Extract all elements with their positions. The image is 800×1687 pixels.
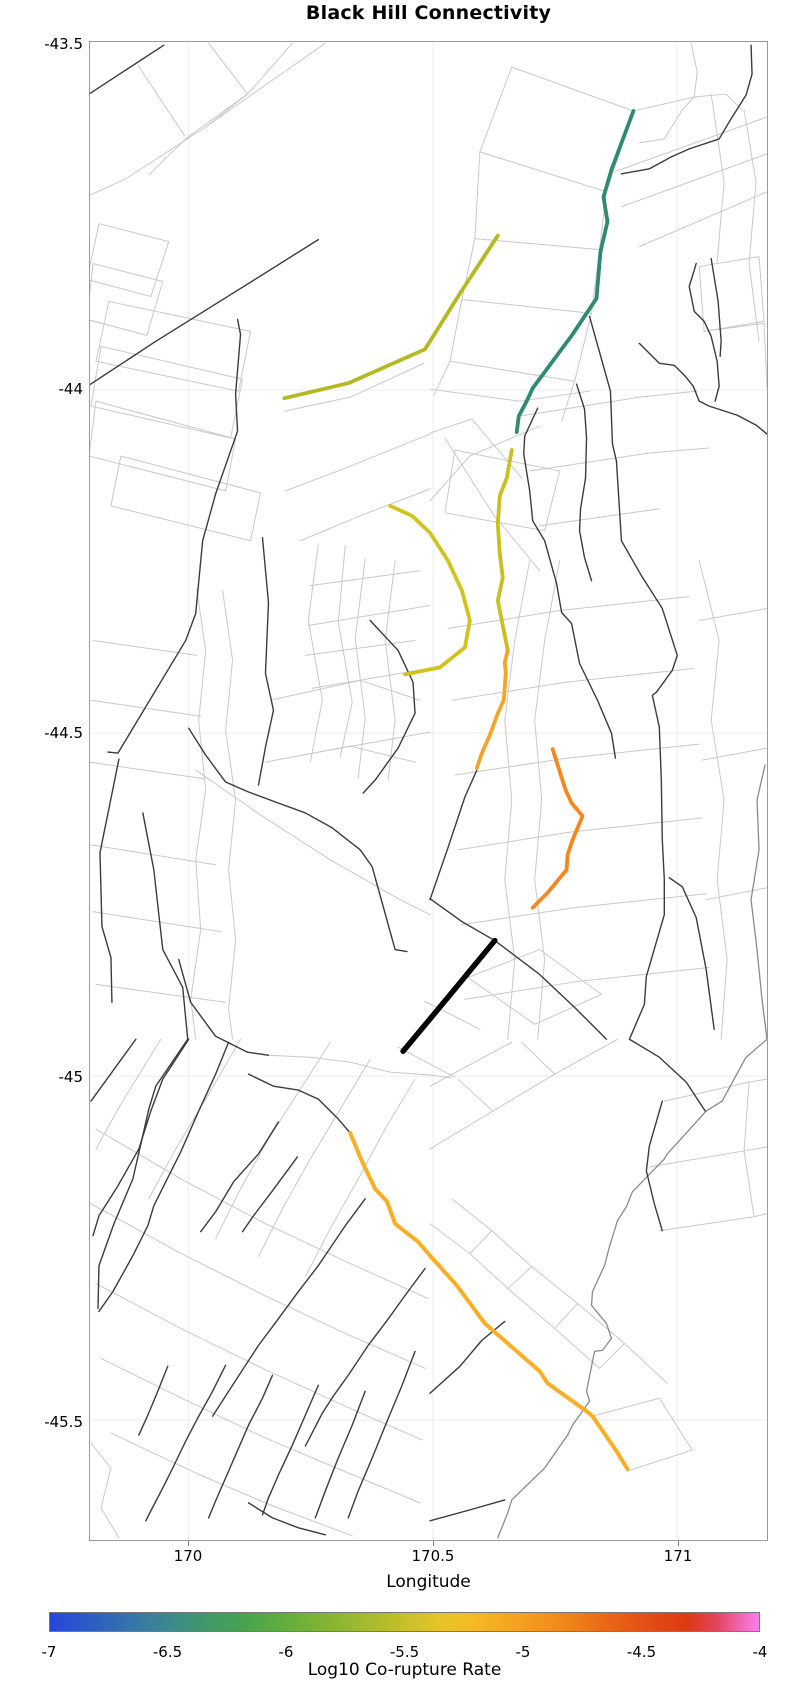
fault-traces-dark	[209, 1375, 273, 1518]
fault-traces-light	[468, 950, 602, 1025]
fault-traces-light	[699, 257, 764, 332]
rupture-yellow-hook	[390, 506, 470, 675]
fault-traces-light	[434, 67, 512, 395]
fault-traces-light	[480, 152, 607, 192]
fault-traces-light	[93, 912, 221, 932]
fault-traces-dark	[139, 1366, 168, 1435]
rupture-orange	[533, 749, 583, 908]
chart-title: Black Hill Connectivity	[89, 2, 768, 24]
fault-traces-light	[430, 1224, 599, 1369]
fault-traces-light	[96, 1129, 428, 1298]
colorbar-tick-label: -4	[730, 1643, 790, 1661]
fault-traces-light	[659, 1214, 767, 1231]
y-tick-label: -45.5	[0, 1413, 83, 1431]
rupture-amber-mid	[477, 650, 508, 768]
fault-traces-dark	[249, 1074, 351, 1133]
fault-traces-light	[206, 94, 248, 127]
fault-traces-light	[216, 1042, 331, 1238]
fault-traces-dark	[93, 1039, 189, 1235]
colorbar	[49, 1612, 760, 1632]
fault-traces-light	[398, 1047, 455, 1077]
fault-traces-light	[599, 1343, 624, 1368]
fault-traces-light	[555, 1303, 578, 1328]
fault-traces-light	[305, 640, 415, 655]
fault-traces-light	[270, 680, 420, 700]
fault-traces-light	[111, 1433, 352, 1536]
fault-traces-light	[91, 700, 201, 716]
fault-traces-light	[91, 43, 325, 195]
colorbar-label: Log10 Co-rupture Rate	[49, 1660, 760, 1680]
fault-traces-light	[285, 434, 430, 491]
fault-traces-dark	[348, 1351, 415, 1518]
colorbar-tick-label: -4.5	[612, 1643, 672, 1661]
fault-traces-light	[308, 606, 430, 626]
fault-traces-dark	[243, 1157, 298, 1232]
fault-traces-light	[744, 110, 759, 341]
fault-traces-light	[90, 224, 169, 297]
x-tick-mark	[678, 1541, 679, 1546]
fault-traces-light	[91, 1204, 425, 1369]
fault-traces-light	[452, 668, 694, 700]
fault-traces-dark	[262, 1385, 318, 1515]
fault-map-canvas	[90, 42, 767, 1540]
rupture-olive-north	[284, 236, 497, 399]
fault-traces-light	[639, 43, 697, 143]
x-tick-label: 171	[638, 1547, 718, 1565]
fault-traces-light	[96, 301, 251, 391]
x-tick-mark	[433, 1541, 434, 1546]
colorbar-tick-label: -5	[493, 1643, 553, 1661]
fault-traces-light	[706, 888, 767, 900]
fault-traces-light	[470, 1231, 492, 1254]
rupture-yellow-vertical	[498, 450, 512, 650]
fault-traces-dark	[315, 1391, 365, 1518]
fault-traces-light	[96, 984, 226, 1002]
fault-traces-dark	[100, 759, 119, 1002]
fault-traces-light	[508, 1267, 532, 1289]
fault-traces-light	[90, 401, 236, 491]
fault-traces-dark	[430, 899, 606, 1040]
fault-traces-light	[649, 1147, 767, 1167]
fault-traces-dark	[249, 1503, 326, 1535]
fault-traces-dark	[99, 1042, 229, 1311]
fault-traces-light	[90, 264, 163, 336]
source-fault-black	[403, 941, 495, 1052]
fault-traces-light	[694, 94, 742, 110]
fault-traces-light	[711, 94, 724, 262]
fault-traces-light	[338, 546, 352, 757]
fault-traces-light	[305, 1079, 415, 1276]
fault-traces-dark	[305, 1269, 425, 1446]
x-tick-label: 170.5	[393, 1547, 473, 1565]
fault-traces-light	[385, 561, 395, 780]
fault-traces-dark	[639, 343, 767, 434]
fault-traces-light	[259, 1059, 371, 1256]
fault-traces-light	[223, 591, 236, 1040]
y-tick-label: -44.5	[0, 724, 83, 742]
fault-traces-light	[462, 894, 706, 925]
fault-traces-light	[430, 1039, 617, 1149]
coastline	[751, 765, 767, 1039]
fault-traces-light	[699, 609, 767, 621]
fault-traces-light	[614, 117, 767, 172]
fault-traces-light	[462, 299, 592, 313]
colorbar-tick-label: -6.5	[138, 1643, 198, 1661]
fault-traces-light	[101, 1358, 420, 1503]
fault-traces-dark	[91, 1039, 136, 1101]
fault-traces-light	[448, 597, 689, 629]
fault-traces-light	[191, 589, 206, 1040]
fault-traces-light	[430, 1042, 512, 1086]
fault-traces-light	[96, 1039, 161, 1149]
x-tick-mark	[188, 1541, 189, 1546]
fault-traces-dark	[669, 878, 714, 1030]
rupture-teal	[517, 111, 634, 432]
fault-traces-light	[91, 1443, 119, 1538]
fault-traces-light	[699, 561, 727, 1040]
fault-traces-light	[149, 138, 187, 175]
fault-traces-dark	[430, 770, 477, 900]
fault-traces-light	[512, 67, 634, 111]
fault-traces-dark	[577, 384, 592, 580]
fault-traces-light	[430, 389, 590, 401]
fault-traces-dark	[108, 319, 241, 753]
fault-traces-light	[91, 346, 243, 438]
fault-traces-light	[522, 1042, 555, 1074]
fault-traces-light	[318, 732, 430, 752]
fault-traces-light	[540, 509, 660, 526]
fault-traces-dark	[430, 1500, 505, 1521]
fault-traces-light	[452, 1199, 667, 1383]
colorbar-tick-label: -6	[256, 1643, 316, 1661]
x-axis-label: Longitude	[89, 1572, 768, 1592]
fault-traces-light	[248, 43, 293, 94]
fault-traces-light	[530, 448, 709, 471]
fault-traces-light	[639, 192, 767, 247]
fault-traces-dark	[90, 240, 318, 386]
fault-traces-dark	[146, 1365, 226, 1521]
fault-traces-light	[96, 1284, 422, 1441]
fault-traces-dark	[201, 1122, 279, 1232]
fault-traces-light	[664, 1079, 767, 1101]
coastline	[498, 1039, 767, 1538]
fault-traces-light	[535, 561, 560, 1040]
fault-traces-light	[702, 748, 767, 760]
fault-traces-dark	[189, 728, 407, 951]
fault-traces-light	[633, 97, 694, 111]
fault-traces-light	[505, 561, 530, 1040]
y-tick-label: -45	[0, 1068, 83, 1086]
fault-traces-dark	[259, 538, 274, 785]
fault-traces-light	[111, 456, 261, 541]
fault-traces-light	[284, 363, 424, 411]
fault-traces-light	[187, 43, 248, 138]
y-tick-label: -43.5	[0, 35, 83, 53]
fault-traces-light	[268, 1055, 451, 1078]
fault-traces-light	[455, 744, 699, 775]
figure: Black Hill Connectivity Latitude -43.5-4…	[0, 0, 800, 1687]
rupture-amber-south	[350, 1133, 627, 1469]
fault-traces-light	[458, 1079, 493, 1111]
x-tick-label: 170	[148, 1547, 228, 1565]
fault-traces-dark	[590, 316, 706, 1111]
fault-traces-light	[520, 391, 697, 416]
fault-traces-light	[310, 571, 420, 586]
colorbar-tick-label: -5.5	[375, 1643, 435, 1661]
y-tick-label: -44	[0, 380, 83, 398]
colorbar-tick-label: -7	[19, 1643, 79, 1661]
fault-traces-light	[138, 65, 185, 136]
map-plot-area	[89, 41, 768, 1541]
fault-traces-light	[450, 361, 575, 381]
